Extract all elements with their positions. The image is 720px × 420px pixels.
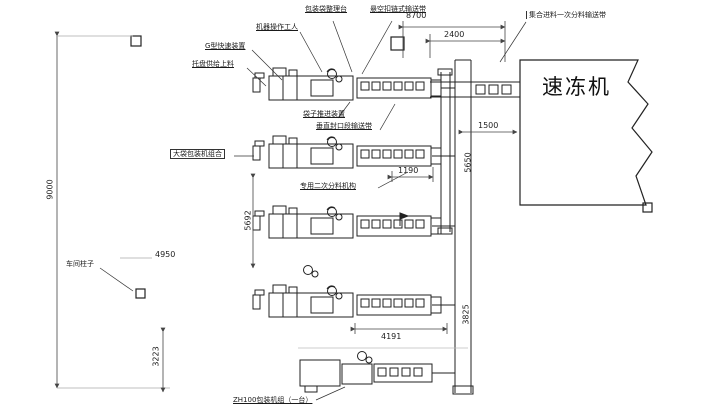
dimension-1190: 1190 [398, 166, 418, 175]
label-quick-device: G型快速装置 [205, 42, 245, 50]
floor-plan-linework [0, 0, 720, 420]
inner-conveyor [438, 69, 452, 234]
label-bag-pusher: 袋子推进装置 [303, 110, 345, 118]
dimension-4191: 4191 [381, 332, 401, 341]
label-bag-packing-group: 大袋包装机组合 [170, 149, 225, 159]
label-machine-operator: 机器操作工人 [256, 23, 298, 31]
machine-row-3 [253, 206, 455, 238]
label-sealing-conveyor: 垂直封口段输送带 [316, 122, 372, 130]
dimension-3825: 3825 [462, 304, 471, 324]
dimension-lines [57, 21, 517, 392]
dimension-4950: 4950 [155, 250, 175, 259]
cad-floor-plan: 包装袋整理台 悬空扣链式输送带 机器操作工人 G型快速装置 托盘供给上料 袋子推… [0, 0, 720, 420]
dimension-8700: 8700 [406, 11, 426, 20]
label-quick-freezer: 速冻机 [542, 83, 611, 91]
label-bag-arrange-table: 包装袋整理台 [305, 5, 347, 13]
freezer-infeed-conveyor [430, 82, 520, 305]
dimension-5650: 5650 [464, 152, 473, 172]
dimension-9000: 9000 [46, 179, 55, 199]
operator-figure [304, 266, 319, 278]
label-workshop-pillar: 车间柱子 [66, 260, 94, 268]
dimension-3223: 3223 [152, 346, 161, 366]
machine-row-2 [253, 136, 455, 168]
vertical-conveyor [453, 60, 473, 394]
dimension-5692: 5692 [244, 210, 253, 230]
dimension-1500: 1500 [478, 121, 498, 130]
label-secondary-divider: 专用二次分料机构 [300, 182, 356, 190]
label-tray-feeder: 托盘供给上料 [192, 60, 234, 68]
dimension-2400: 2400 [444, 30, 464, 39]
machine-row-bottom [300, 352, 455, 393]
leader-lines [100, 21, 526, 400]
machine-row-4 [253, 285, 455, 317]
machine-row-1 [253, 68, 455, 100]
label-primary-divider-conveyor: 集合进料一次分料输送带 [526, 11, 606, 19]
label-zh100-packing-group: ZH100包装机组（一台） [233, 396, 312, 404]
